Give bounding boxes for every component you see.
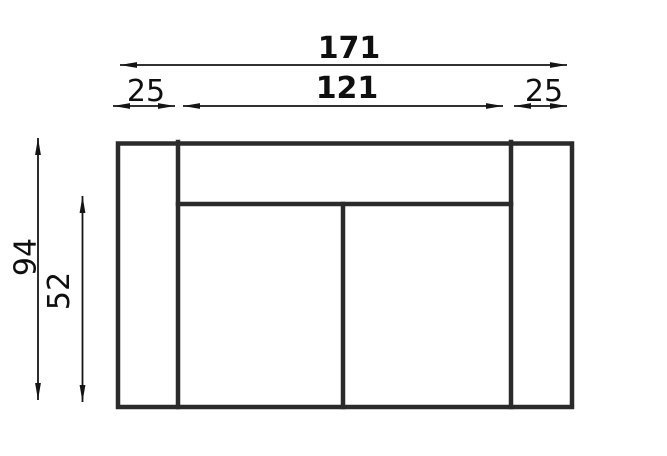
sofa-dimension-diagram: 171 25 121 25 94 52 xyxy=(0,0,667,456)
dimension-total-depth: 94 xyxy=(9,138,44,400)
dimension-left-arm: 25 xyxy=(113,74,175,109)
inner-width-label: 121 xyxy=(316,71,379,106)
dimension-drawing-canvas: 171 25 121 25 94 52 xyxy=(0,0,667,456)
dimension-seat-depth: 52 xyxy=(42,196,83,402)
sofa-outline-group xyxy=(118,142,572,407)
total-width-label: 171 xyxy=(318,31,381,66)
seat-depth-label: 52 xyxy=(42,272,77,310)
right-arm-label: 25 xyxy=(525,74,563,109)
dimension-inner-width: 121 xyxy=(183,71,503,106)
total-depth-label: 94 xyxy=(9,238,44,276)
left-arm-label: 25 xyxy=(127,74,165,109)
dimension-total-width: 171 xyxy=(120,31,567,66)
dimension-right-arm: 25 xyxy=(514,74,567,109)
